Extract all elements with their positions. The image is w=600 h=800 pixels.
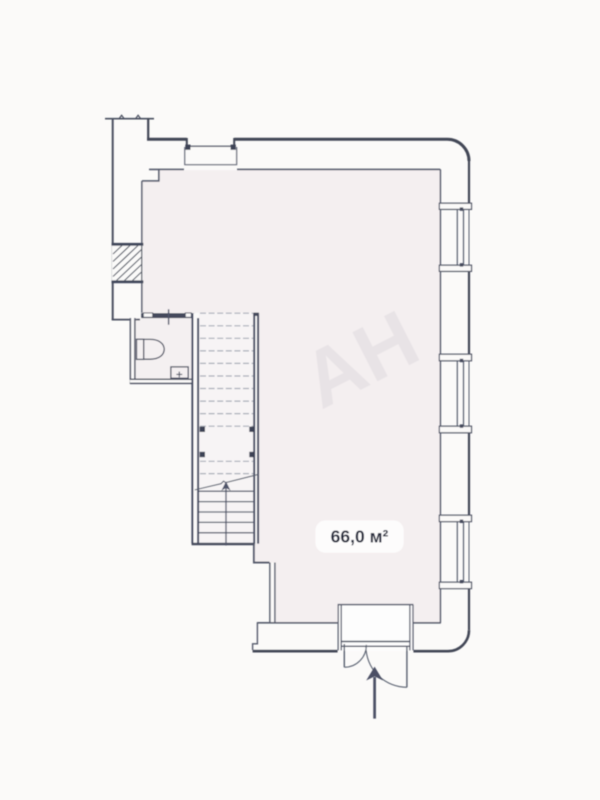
svg-text:66,0 м²: 66,0 м² <box>331 527 389 547</box>
